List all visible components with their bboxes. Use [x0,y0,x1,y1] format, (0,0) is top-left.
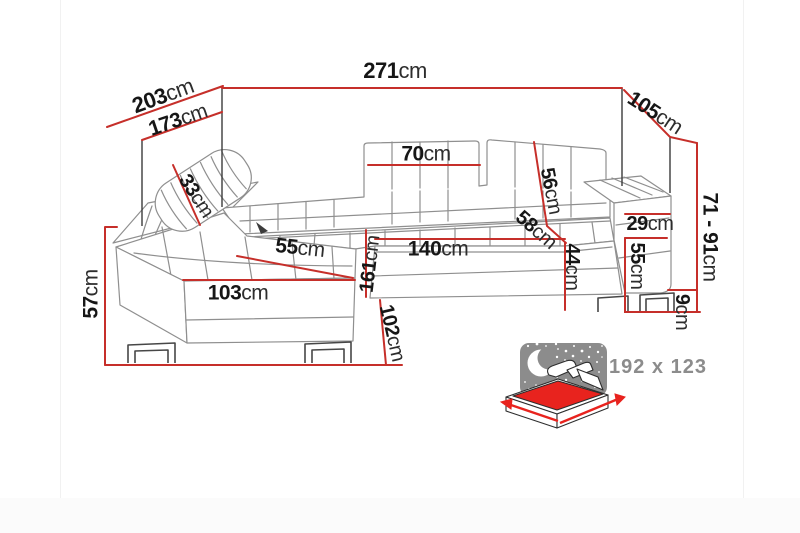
dim-label-271: 271cm [363,60,427,82]
dim-label-9: 9cm [672,294,692,330]
length-arrowhead [615,394,625,405]
sleeping-function-icon [501,343,625,428]
dim-label-44: 44cm [562,244,582,291]
dim-label-103: 103cm [208,283,269,304]
dim-label-57: 57cm [81,269,102,318]
dim-label-70: 70cm [401,144,450,165]
dim-label-71-91: 71 - 91cm [700,193,721,282]
front-mid-leg-inner [312,349,344,363]
dim-label-55-left: 55cm [274,235,325,261]
dimension-diagram: 271cm 203cm 173cm 105cm 71 - 91cm 33cm 7… [0,0,800,533]
right-corner-leg [640,293,674,313]
right-leg [598,296,628,312]
dim-line-57 [105,227,117,365]
front-left-leg-inner [135,350,168,363]
dim-label-140: 140cm [408,239,469,260]
dim-label-55-right: 55cm [627,243,647,290]
dim-label-29: 29cm [627,214,674,234]
sleeping-area-label: 192 x 123 [609,357,707,377]
right-corner-leg-inner [646,298,668,312]
